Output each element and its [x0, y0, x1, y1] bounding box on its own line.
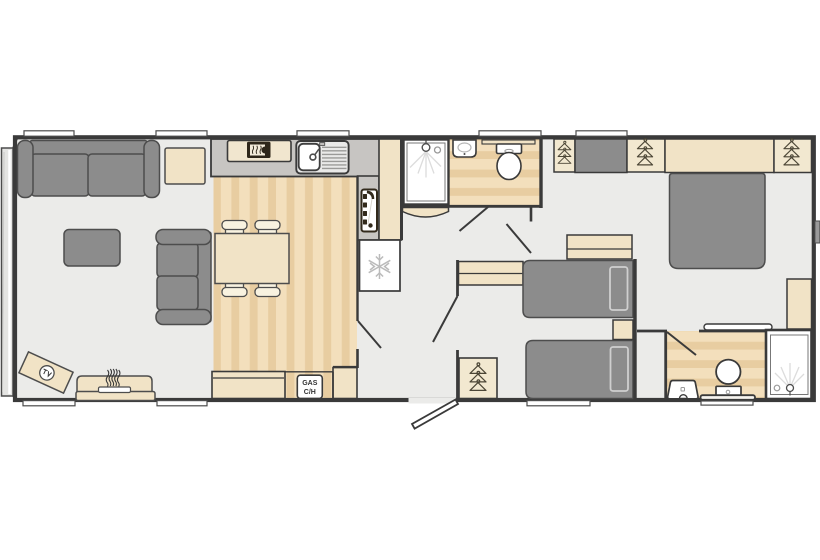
svg-text:C/H: C/H — [304, 389, 316, 396]
svg-text:GAS: GAS — [302, 380, 318, 387]
